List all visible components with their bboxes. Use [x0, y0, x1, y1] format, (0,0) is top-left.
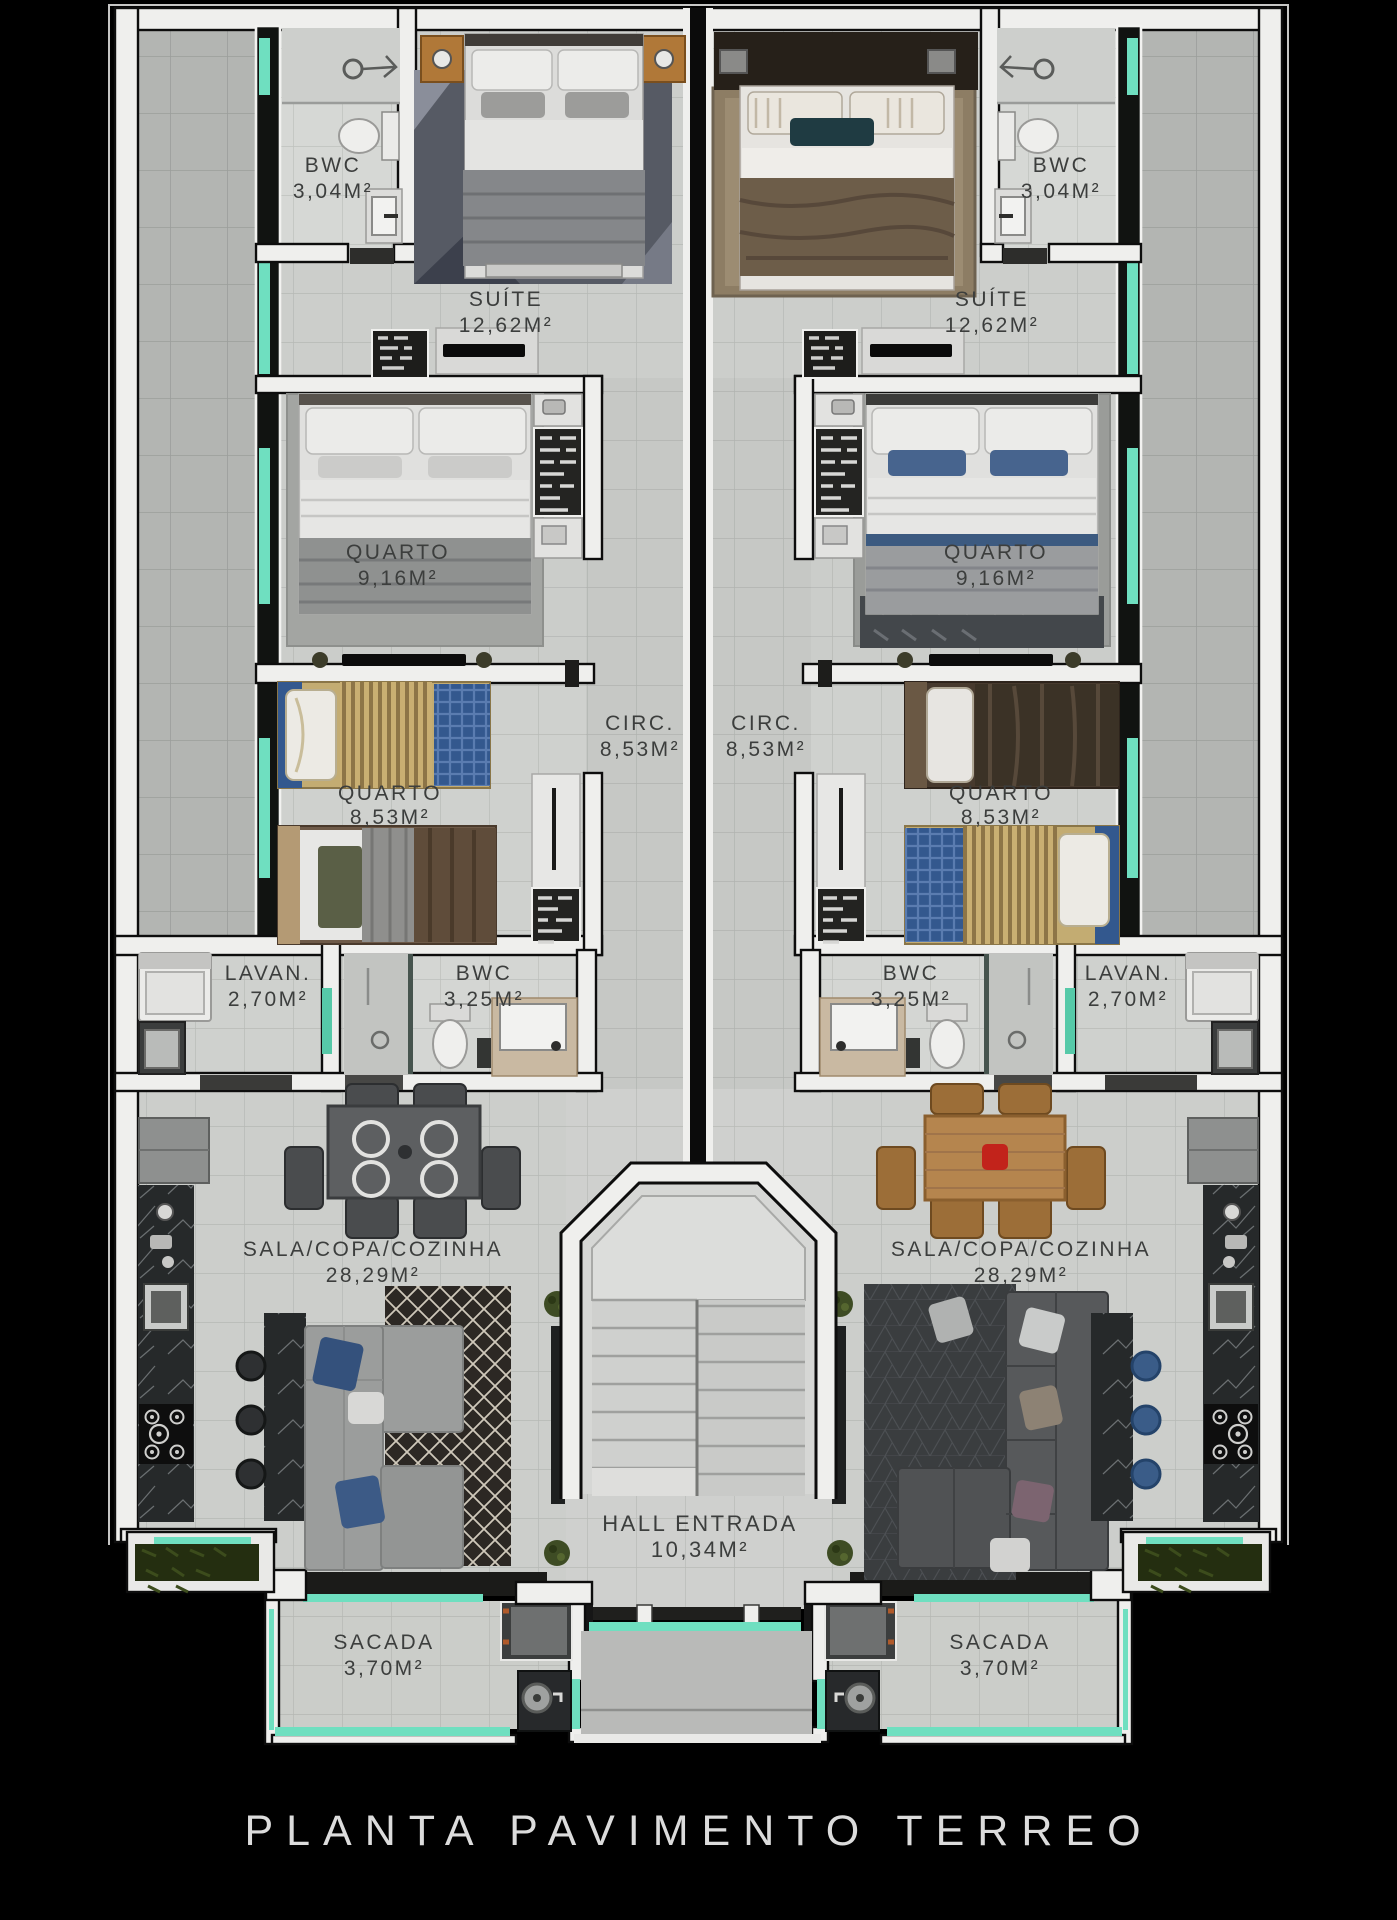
svg-text:8,53M²: 8,53M² — [961, 806, 1041, 829]
svg-text:3,25M²: 3,25M² — [871, 988, 951, 1011]
svg-text:9,16M²: 9,16M² — [358, 567, 438, 590]
svg-text:3,04M²: 3,04M² — [293, 180, 373, 203]
svg-text:10,34M²: 10,34M² — [651, 1537, 749, 1562]
svg-text:SALA/COPA/COZINHA: SALA/COPA/COZINHA — [243, 1238, 503, 1261]
svg-text:QUARTO: QUARTO — [949, 782, 1053, 805]
svg-text:8,53M²: 8,53M² — [726, 738, 806, 761]
svg-text:CIRC.: CIRC. — [605, 712, 675, 735]
svg-text:BWC: BWC — [1033, 154, 1090, 177]
svg-text:LAVAN.: LAVAN. — [225, 962, 312, 985]
svg-text:BWC: BWC — [883, 962, 940, 985]
svg-text:SUÍTE: SUÍTE — [955, 288, 1029, 311]
svg-text:BWC: BWC — [305, 154, 362, 177]
svg-text:3,70M²: 3,70M² — [344, 1657, 424, 1680]
svg-text:QUARTO: QUARTO — [338, 782, 442, 805]
svg-text:CIRC.: CIRC. — [731, 712, 801, 735]
svg-text:SACADA: SACADA — [949, 1631, 1050, 1654]
svg-text:PLANTA PAVIMENTO TERREO: PLANTA PAVIMENTO TERREO — [244, 1807, 1153, 1855]
svg-text:3,25M²: 3,25M² — [444, 988, 524, 1011]
svg-text:12,62M²: 12,62M² — [945, 314, 1040, 337]
svg-text:QUARTO: QUARTO — [944, 541, 1048, 564]
svg-text:LAVAN.: LAVAN. — [1085, 962, 1172, 985]
svg-text:2,70M²: 2,70M² — [1088, 988, 1168, 1011]
svg-text:8,53M²: 8,53M² — [600, 738, 680, 761]
svg-text:BWC: BWC — [456, 962, 513, 985]
svg-text:3,70M²: 3,70M² — [960, 1657, 1040, 1680]
svg-text:QUARTO: QUARTO — [346, 541, 450, 564]
svg-text:HALL ENTRADA: HALL ENTRADA — [602, 1511, 797, 1536]
svg-text:SUÍTE: SUÍTE — [469, 288, 543, 311]
svg-text:3,04M²: 3,04M² — [1021, 180, 1101, 203]
svg-text:28,29M²: 28,29M² — [326, 1264, 421, 1287]
svg-text:2,70M²: 2,70M² — [228, 988, 308, 1011]
svg-text:28,29M²: 28,29M² — [974, 1264, 1069, 1287]
svg-text:SALA/COPA/COZINHA: SALA/COPA/COZINHA — [891, 1238, 1151, 1261]
svg-text:SACADA: SACADA — [333, 1631, 434, 1654]
svg-text:8,53M²: 8,53M² — [350, 806, 430, 829]
svg-text:9,16M²: 9,16M² — [956, 567, 1036, 590]
svg-text:12,62M²: 12,62M² — [459, 314, 554, 337]
